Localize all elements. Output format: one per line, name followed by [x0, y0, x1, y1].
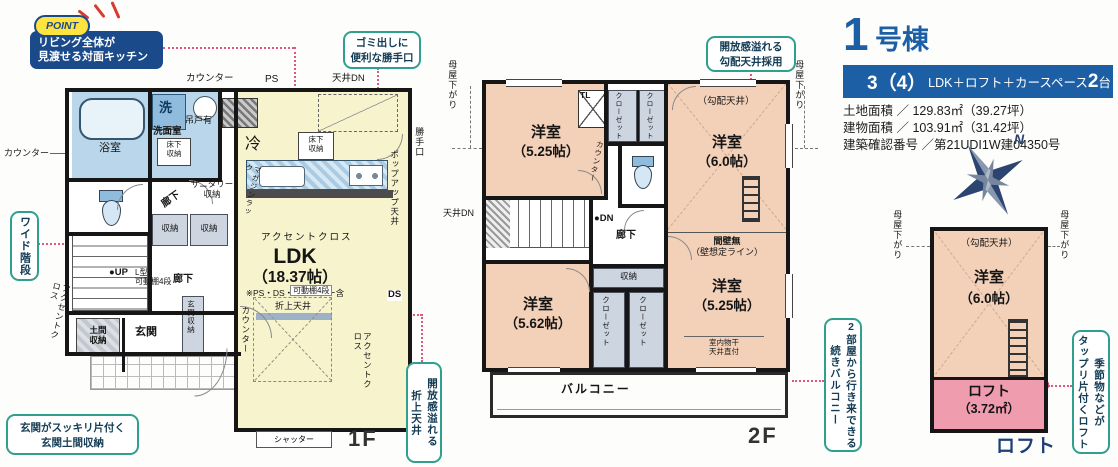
label-bath: 浴室: [81, 142, 139, 155]
label-back-door: 勝手口: [414, 127, 424, 175]
label-slope-ceiling-2f: （勾配天井）: [688, 97, 764, 108]
door-arc: [117, 184, 143, 210]
callout-back-door-text: ゴミ出しに 便利な勝手口: [351, 35, 414, 65]
leader-line: [421, 314, 423, 362]
label-closet-2: クローゼット: [645, 92, 653, 142]
label-hallway-2: 廊下: [173, 274, 193, 285]
wall: [625, 292, 629, 368]
label-loft-room-size: （6.0帖）: [942, 291, 1036, 306]
label-underfloor-storage-kitchen: 床下 収納: [299, 136, 333, 153]
door-arc: [624, 210, 644, 230]
plan-2f: TL 洋室 （5.25帖: [482, 80, 790, 372]
callout-sloped-ceiling: 開放感溢れる 勾配天井採用: [706, 36, 796, 72]
balcony-inner-line: [497, 409, 781, 410]
land-area-line: 土地面積 ／ 129.83㎡（39.27坪）: [843, 104, 1032, 118]
wall: [234, 352, 238, 432]
floor-plan-flyer: 1 号棟 3（4） LDK＋ロフト＋カースペース 2 台 土地面積 ／ 129.…: [0, 0, 1118, 467]
label-ps: PS: [265, 74, 278, 85]
building-number: 1: [843, 8, 869, 60]
banner-desc: LDK＋ロフト＋カースペース: [928, 72, 1088, 91]
compass-icon: N: [938, 126, 1044, 222]
counter-front-band: [246, 190, 393, 198]
label-movable-shelf: 可動棚4段: [290, 285, 332, 296]
leader-line: [1048, 385, 1072, 387]
label-moya-left-2f: 母屋下がり: [447, 60, 457, 154]
label-washer: 洗: [159, 101, 172, 116]
label-room1-size: （5.25帖）: [496, 144, 596, 159]
banner-rooms: 3（4）: [867, 68, 926, 95]
label-closet-4: クローゼット: [638, 296, 647, 366]
label-popup-ceiling: ポップアップ天井: [389, 150, 399, 244]
wall: [593, 288, 668, 292]
callout-sloped-ceiling-text: 開放感溢れる 勾配天井採用: [720, 39, 783, 69]
window: [785, 274, 793, 318]
window: [506, 79, 562, 87]
moya-boundary-line: [804, 86, 805, 148]
moya-boundary-line: [452, 148, 482, 149]
floor-label-loft: ロフト: [996, 436, 1056, 458]
label-ldk: LDK: [247, 245, 343, 269]
stair-landing-hatch: [486, 200, 510, 248]
label-moya-right-2f: 母屋下がり: [794, 60, 804, 154]
label-room3: 洋室: [498, 296, 578, 313]
wall: [234, 92, 238, 356]
banner-unit: 台: [1098, 72, 1111, 91]
moya-boundary-line: [790, 148, 818, 149]
label-ceiling-dn-1f: 天井DN: [332, 74, 365, 85]
shutter-box: シャッター: [256, 431, 332, 448]
balcony: バルコニー: [490, 372, 788, 418]
label-no-wall-note: 間壁無: [686, 236, 768, 246]
kitchen-sink: [259, 166, 305, 187]
label-room4-size: （5.25帖）: [682, 298, 772, 313]
wall: [637, 90, 639, 142]
label-accent-cross-3: アクセントクロス: [352, 332, 371, 396]
banner-cars: 2: [1088, 71, 1099, 93]
label-dn: ●DN: [594, 214, 613, 225]
label-sanitary-storage: サニタリー 収納: [181, 180, 243, 199]
label-fridge: 冷: [245, 136, 261, 154]
label-entrance-storage: 玄関収納: [186, 300, 195, 360]
label-room4: 洋室: [686, 278, 768, 295]
laundry-bar: [684, 336, 764, 337]
callout-wide-stairs: ワイド階段: [10, 211, 39, 281]
plan-1f: 浴室 洗 洗面室 吊戸有 床下 収納 サニタリー 収納 廊下 ●UP L型 可動…: [65, 88, 412, 432]
bathtub: [79, 98, 145, 140]
label-moya-right-loft: 母屋下がり: [1059, 210, 1069, 296]
label-storage-2: 収納: [190, 224, 228, 234]
callout-coffered-ceiling: 開放感溢れる 折上天井: [406, 362, 442, 463]
callout-doma-storage-text: 玄関がスッキリ片付く 玄関土間収納: [20, 420, 125, 450]
label-storage-2f: 収納: [593, 272, 664, 282]
label-closet-1: クローゼット: [614, 92, 622, 142]
label-room2-size: （6.0帖）: [686, 154, 768, 169]
label-indoor-laundry: 室内物干 天井直付: [684, 339, 764, 356]
callout-back-door: ゴミ出しに 便利な勝手口: [343, 31, 421, 69]
wall: [589, 200, 593, 368]
label-counter-left: カウンター: [4, 148, 49, 158]
label-ds: DS: [387, 290, 402, 301]
wall: [148, 182, 152, 315]
window: [785, 124, 793, 168]
point-callout-text: リビング全体が 見渡せる対面キッチン: [38, 36, 158, 65]
label-loft-size: （3.72㎡）: [942, 402, 1036, 416]
floor-label-2f: 2F: [748, 423, 778, 448]
loft-ladder-2f: [742, 176, 760, 222]
label-loft-room: 洋室: [948, 269, 1030, 286]
loft-ladder: [1008, 319, 1028, 377]
floor-label-1f: 1F: [348, 426, 378, 451]
label-assumed-wall-note: （壁想定ライン）: [678, 247, 776, 257]
label-room1: 洋室: [506, 124, 586, 141]
room-2f-east: [668, 84, 786, 368]
label-ldk-size: （18.37帖）: [239, 269, 351, 287]
spark-icon: [110, 1, 120, 19]
toilet-bowl-2f: [634, 165, 652, 189]
ps-shaft: [222, 98, 258, 128]
label-ceiling-dn-2f: 天井DN: [443, 208, 474, 218]
leader-line: [163, 47, 294, 49]
label-entrance: 玄関: [135, 326, 157, 339]
label-tl: TL: [580, 91, 590, 101]
callout-coffered-ceiling-text: 開放感溢れる 折上天井: [408, 378, 440, 447]
kitchen-stove: [349, 165, 383, 186]
label-accent-cross-1: アクセントクロス: [261, 233, 353, 244]
moya-boundary-line: [470, 86, 471, 148]
window: [700, 79, 756, 87]
callout-doma-storage: 玄関がスッキリ片付く 玄関土間収納: [6, 414, 139, 455]
label-room3-size: （5.62帖）: [488, 316, 588, 331]
wall: [618, 146, 622, 208]
label-shutter: シャッター: [274, 434, 314, 445]
callout-balcony: 2部屋から行き来できる 続きバルコニー: [824, 318, 862, 452]
label-balcony: バルコニー: [561, 383, 631, 397]
point-badge-label: POINT: [46, 20, 78, 32]
wall: [69, 311, 238, 315]
compass-north-label: N: [1014, 131, 1025, 147]
label-coffered-ceiling: 折上天井: [275, 301, 311, 311]
spark-icon: [93, 4, 105, 18]
plan-type-banner: 3（4） LDK＋ロフト＋カースペース 2 台: [843, 65, 1113, 98]
label-washroom: 洗面室: [153, 127, 182, 138]
moya-boundary-line: [906, 246, 930, 247]
callout-loft: 季節物などが タップリ片付くロフト: [1072, 330, 1110, 454]
plan-loft: （勾配天井） 洋室 （6.0帖） ロフト （3.72㎡）: [930, 227, 1048, 433]
wall: [69, 232, 152, 236]
moya-boundary-line: [1048, 246, 1060, 247]
callout-balcony-text: 2部屋から行き来できる 続きバルコニー: [827, 321, 859, 449]
closet-box-1: [608, 90, 637, 142]
label-counter-vertical: カウンター: [240, 306, 250, 364]
point-badge: POINT: [34, 15, 90, 37]
wall: [593, 264, 668, 268]
wall: [622, 204, 668, 208]
label-up: ●UP: [109, 268, 128, 279]
label-underfloor-storage: 床下 収納: [158, 141, 190, 158]
label-counter-top: カウンター: [186, 74, 234, 85]
label-storage-1: 収納: [152, 224, 188, 234]
label-room2: 洋室: [686, 134, 768, 151]
assumed-wall-line: [668, 232, 786, 233]
wall: [148, 92, 152, 178]
wall: [664, 84, 668, 368]
building-suffix: 号棟: [875, 25, 929, 56]
wall: [122, 318, 125, 372]
wall: [486, 260, 593, 264]
wall: [608, 142, 668, 146]
label-loft-name: ロフト: [948, 384, 1030, 400]
wall: [486, 196, 604, 200]
label-hallway-1: 廊下: [160, 189, 183, 210]
label-loft-slope: （勾配天井）: [950, 239, 1028, 250]
label-closet-3: クローゼット: [601, 296, 610, 366]
label-doma-storage: 土間 収納: [76, 326, 120, 345]
label-l-shelf: L型 可動棚4段: [135, 268, 171, 286]
label-hallway-2f: 廊下: [616, 230, 636, 241]
callout-wide-stairs-text: ワイド階段: [17, 216, 33, 276]
ceiling-dn-zone: [318, 94, 398, 132]
leader-line: [792, 380, 824, 382]
wall: [218, 92, 222, 182]
label-moya-left-loft: 母屋下がり: [892, 210, 902, 296]
label-hanging-cabinet: 吊戸有: [185, 115, 212, 125]
callout-loft-text: 季節物などが タップリ片付くロフト: [1075, 335, 1107, 450]
